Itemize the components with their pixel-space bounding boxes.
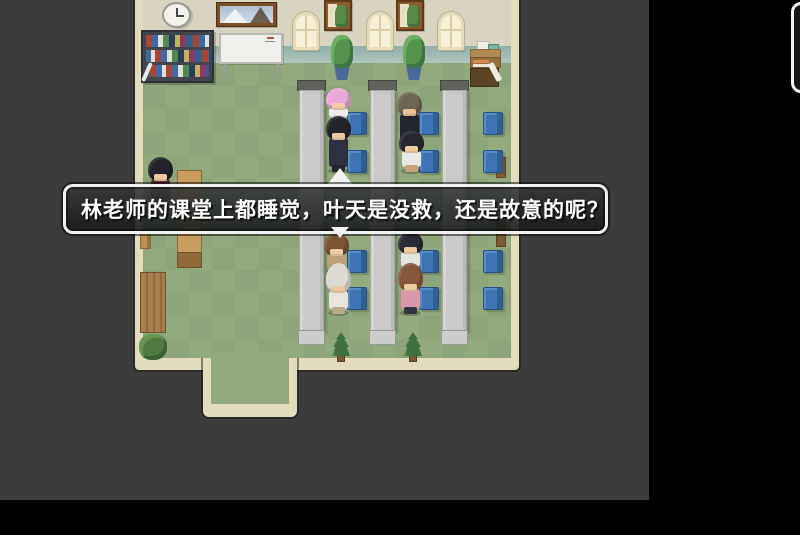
- student-chair: [483, 112, 503, 135]
- arched-window: [367, 12, 393, 50]
- student-black-hair-front[interactable]: [325, 116, 352, 172]
- whiteboard-leg: [223, 64, 226, 78]
- leafy-bush: [139, 334, 167, 360]
- character-face: [404, 284, 417, 291]
- character-face: [330, 249, 343, 256]
- wooden-stool: [140, 233, 151, 249]
- wooden-floor-mat: [140, 272, 166, 333]
- podium-front: [177, 252, 202, 268]
- student-desk-end: [369, 330, 396, 345]
- dialogue-text: 林老师的课堂上都睡觉，叶天是没救，还是故意的呢？: [66, 187, 605, 231]
- student-white-hair[interactable]: [325, 263, 352, 314]
- character-legs: [332, 307, 345, 314]
- character-face: [404, 247, 417, 254]
- character-face: [154, 174, 167, 181]
- character-legs: [405, 165, 418, 172]
- character-face: [332, 103, 345, 110]
- whiteboard-leg: [276, 64, 279, 78]
- pine-pot: [337, 355, 345, 362]
- character-body: [329, 138, 348, 167]
- potted-plant: [403, 35, 425, 82]
- painting-canvas: [220, 6, 273, 23]
- plant-leaves: [331, 35, 353, 68]
- whiteboard-red-mark: [267, 37, 274, 39]
- desk-mid-shelf: [470, 57, 501, 68]
- book-row: [146, 50, 209, 62]
- speech-tail-icon: [327, 168, 353, 185]
- potted-plant: [331, 35, 353, 82]
- book-row: [146, 65, 209, 77]
- character-face: [332, 286, 345, 293]
- book-row: [146, 35, 209, 47]
- arched-window: [293, 12, 319, 50]
- game-screen: 林老师的课堂上都睡觉，叶天是没救，还是故意的呢？: [0, 0, 800, 535]
- offscreen-window-fragment: [791, 2, 800, 93]
- whiteboard: [219, 33, 283, 80]
- student-chair: [483, 287, 503, 310]
- character-body: [401, 289, 420, 309]
- plant-picture-frame: [396, 0, 424, 31]
- student-chair: [483, 250, 503, 273]
- pine-tree: [404, 332, 422, 356]
- student-desk-end: [298, 330, 325, 345]
- pine-plant: [330, 332, 352, 362]
- bookshelf: [141, 30, 214, 83]
- student-chair: [483, 150, 503, 173]
- character-face: [405, 146, 418, 153]
- plant-leaves: [403, 35, 425, 68]
- continue-cursor-icon: [331, 227, 349, 238]
- character-face: [332, 133, 345, 140]
- student-desk-end: [441, 330, 468, 345]
- mountain-painting: [216, 2, 277, 27]
- pine-plant: [402, 332, 424, 362]
- student-auburn-hair[interactable]: [397, 263, 424, 314]
- game-viewport[interactable]: [0, 0, 649, 500]
- teacher-desk: [468, 40, 505, 90]
- character-legs: [404, 307, 417, 314]
- whiteboard-gray-mark: [265, 41, 275, 42]
- corridor-floor[interactable]: [211, 352, 289, 404]
- wall-clock-icon: [162, 2, 191, 28]
- plant-picture-frame: [324, 0, 352, 31]
- student-black-hair-girl[interactable]: [398, 131, 425, 172]
- character-face: [403, 109, 416, 116]
- pine-pot: [409, 355, 417, 362]
- pine-tree: [332, 332, 350, 356]
- arched-window: [438, 12, 464, 50]
